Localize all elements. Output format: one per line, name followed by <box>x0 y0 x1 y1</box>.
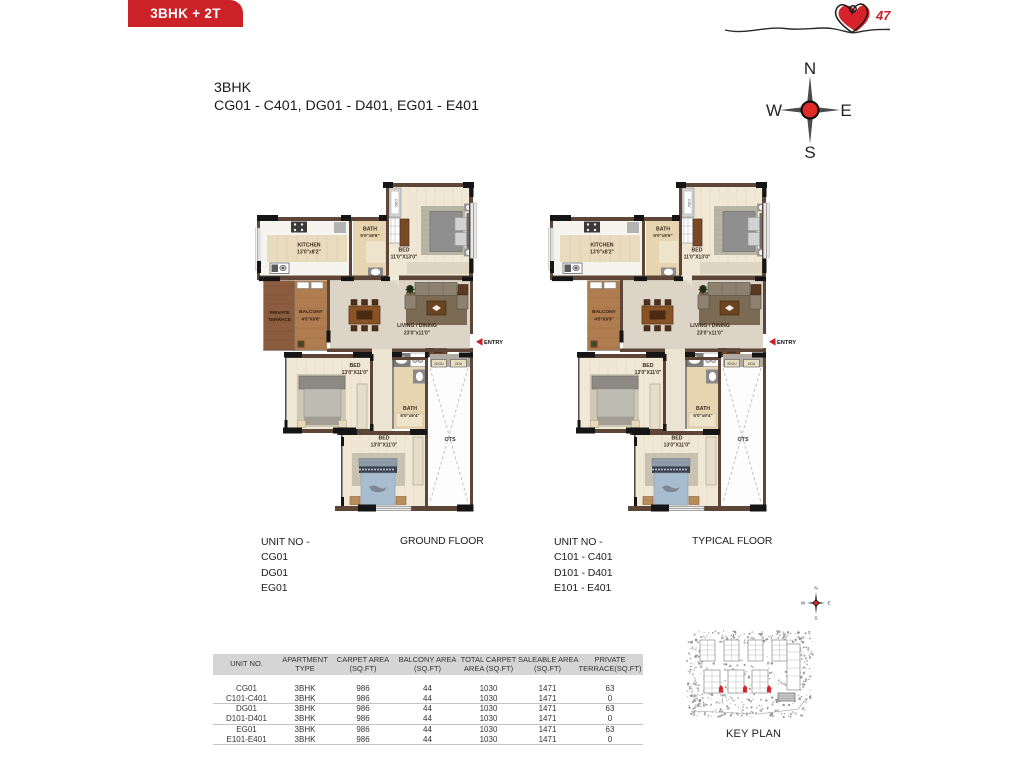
svg-text:E: E <box>827 601 830 606</box>
svg-text:BATH: BATH <box>656 227 670 233</box>
svg-text:ENTRY: ENTRY <box>777 340 796 346</box>
svg-text:2DOU: 2DOU <box>434 362 444 366</box>
svg-text:ODU: ODU <box>748 362 756 366</box>
svg-text:13'0"x8'2": 13'0"x8'2" <box>297 250 321 256</box>
svg-text:23'0"x11'0": 23'0"x11'0" <box>697 331 724 337</box>
svg-text:LIVING / DINING: LIVING / DINING <box>690 323 730 329</box>
svg-text:11'0"X13'0": 11'0"X13'0" <box>391 255 418 261</box>
svg-text:13'0"X11'0": 13'0"X11'0" <box>664 443 691 449</box>
svg-text:N: N <box>814 586 817 591</box>
svg-text:5'0"x8'6": 5'0"x8'6" <box>360 233 379 238</box>
svg-text:BED: BED <box>672 436 683 442</box>
svg-text:LIVING / DINING: LIVING / DINING <box>397 323 437 329</box>
svg-text:13'0"X11'0": 13'0"X11'0" <box>371 443 398 449</box>
svg-text:4'5"X9'8": 4'5"X9'8" <box>302 317 321 322</box>
svg-text:OTS: OTS <box>444 437 455 443</box>
svg-text:BALCONY: BALCONY <box>299 309 324 315</box>
svg-text:COU: COU <box>394 199 398 207</box>
svg-text:BATH: BATH <box>403 406 417 412</box>
svg-text:11'0"X13'0": 11'0"X13'0" <box>684 255 711 261</box>
svg-text:BED: BED <box>379 436 390 442</box>
svg-text:BED: BED <box>643 363 654 369</box>
svg-text:13'0"X11'0": 13'0"X11'0" <box>635 370 662 376</box>
svg-text:N: N <box>804 59 816 78</box>
svg-text:23'0"x11'0": 23'0"x11'0" <box>404 331 431 337</box>
svg-text:BED: BED <box>399 248 410 254</box>
svg-text:BALCONY: BALCONY <box>592 309 617 315</box>
svg-text:S: S <box>814 616 817 621</box>
svg-text:BATH: BATH <box>363 227 377 233</box>
svg-text:5'0"x9'4": 5'0"x9'4" <box>400 413 419 418</box>
svg-text:KITCHEN: KITCHEN <box>590 243 613 249</box>
svg-text:W: W <box>766 101 782 120</box>
svg-text:4'5"X9'8": 4'5"X9'8" <box>595 317 614 322</box>
svg-text:13'0"X11'0": 13'0"X11'0" <box>342 370 369 376</box>
svg-text:ENTRY: ENTRY <box>484 340 503 346</box>
svg-text:KITCHEN: KITCHEN <box>297 243 320 249</box>
svg-text:S: S <box>804 143 815 162</box>
svg-text:13'0"x8'2": 13'0"x8'2" <box>590 250 614 256</box>
svg-text:BED: BED <box>350 363 361 369</box>
svg-text:47: 47 <box>875 8 891 23</box>
svg-text:TERRACE: TERRACE <box>268 317 292 323</box>
svg-text:5'0"x9'4": 5'0"x9'4" <box>693 413 712 418</box>
svg-text:5'0"x8'6": 5'0"x8'6" <box>653 233 672 238</box>
svg-text:BATH: BATH <box>696 406 710 412</box>
svg-text:E: E <box>840 101 851 120</box>
svg-text:PRIVATE: PRIVATE <box>269 310 290 316</box>
svg-text:2DOU: 2DOU <box>727 362 737 366</box>
svg-text:OTS: OTS <box>737 437 748 443</box>
svg-text:W: W <box>801 601 806 606</box>
svg-text:BED: BED <box>692 248 703 254</box>
svg-text:COU: COU <box>687 199 691 207</box>
svg-text:ODU: ODU <box>455 362 463 366</box>
